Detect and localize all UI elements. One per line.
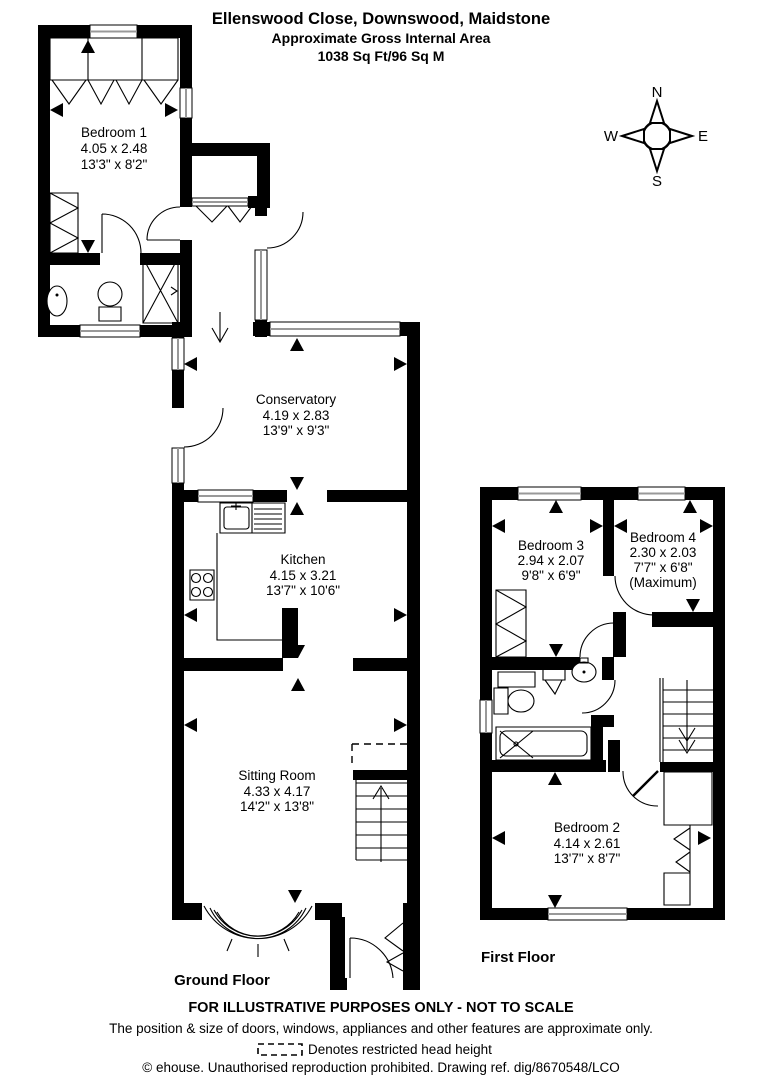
bedroom4-label: Bedroom 4 2.30 x 2.03 7'7" x 6'8" (Maxim…	[629, 530, 697, 590]
page-area: 1038 Sq Ft/96 Sq M	[318, 48, 445, 64]
room-metric: 2.94 x 2.07	[518, 553, 585, 568]
compass-circle	[643, 122, 671, 150]
room-metric: 4.14 x 2.61	[554, 836, 621, 851]
entry-arrow	[212, 312, 228, 342]
restricted-head-height-key-icon	[258, 1044, 302, 1055]
sink-basin	[224, 507, 249, 529]
bedroom2-label: Bedroom 2 4.14 x 2.61 13'7" x 8'7"	[554, 820, 621, 866]
room-imperial: 13'3" x 8'2"	[81, 157, 148, 172]
porch-window-glazing-marks	[196, 206, 252, 222]
disclaimer-line3: Denotes restricted head height	[308, 1042, 492, 1057]
kitchen-label: Kitchen 4.15 x 3.21 13'7" x 10'6"	[266, 552, 340, 598]
first-floor-plan: Bedroom 3 2.94 x 2.07 9'8" x 6'9" Bedroo…	[480, 487, 725, 966]
ground-floor-plan: Bedroom 1 4.05 x 2.48 13'3" x 8'2" Conse…	[38, 25, 420, 990]
ground-floor-label: Ground Floor	[174, 972, 270, 989]
hob-burner	[204, 588, 213, 597]
room-name: Bedroom 3	[518, 538, 584, 553]
compass-s: S	[652, 173, 662, 190]
copyright-line: © ehouse. Unauthorised reproduction proh…	[142, 1060, 620, 1075]
room-imperial: 7'7" x 6'8"	[633, 560, 692, 575]
shower-icon	[143, 258, 178, 323]
hob-burner	[192, 574, 201, 583]
room-name: Bedroom 1	[81, 125, 147, 140]
toilet-cistern	[494, 688, 508, 714]
compass-icon: N E S W	[604, 84, 708, 190]
stairs-up	[356, 770, 407, 862]
room-metric: 4.15 x 3.21	[270, 568, 337, 583]
bedroom3-label: Bedroom 3 2.94 x 2.07 9'8" x 6'9"	[518, 538, 585, 583]
bath-inner	[500, 731, 587, 756]
stairs-down	[660, 678, 713, 762]
disclaimer-line1: FOR ILLUSTRATIVE PURPOSES ONLY - NOT TO …	[188, 1000, 574, 1016]
room-note: (Maximum)	[629, 575, 697, 590]
toilet-cistern	[99, 307, 121, 321]
room-imperial: 14'2" x 13'8"	[240, 799, 314, 814]
toilet-bowl-icon	[98, 282, 122, 306]
hob-burner	[204, 574, 213, 583]
ground-floor-windows	[80, 25, 400, 502]
basin-icon	[47, 286, 67, 316]
room-metric: 4.33 x 4.17	[244, 784, 311, 799]
restricted-head-height-line	[352, 744, 407, 767]
basin-tap-dot	[56, 294, 59, 297]
room-imperial: 13'7" x 8'7"	[554, 851, 621, 866]
first-floor-label: First Floor	[481, 949, 555, 966]
room-name: Bedroom 2	[554, 820, 620, 835]
bedroom2-door-leaf	[633, 771, 658, 796]
room-name: Kitchen	[280, 552, 325, 567]
room-metric: 2.30 x 2.03	[630, 545, 697, 560]
room-imperial: 9'8" x 6'9"	[521, 568, 580, 583]
toilet-bowl-icon	[508, 690, 534, 712]
floorplan-drawing: Ellenswood Close, Downswood, Maidstone A…	[0, 0, 763, 1080]
room-imperial: 13'7" x 10'6"	[266, 583, 340, 598]
disclaimer-line2: The position & size of doors, windows, a…	[109, 1021, 653, 1036]
bay-window-icon	[204, 906, 312, 957]
room-name: Conservatory	[256, 392, 337, 407]
room-imperial: 13'9" x 9'3"	[263, 423, 330, 438]
page-title: Ellenswood Close, Downswood, Maidstone	[212, 10, 550, 28]
header: Ellenswood Close, Downswood, Maidstone A…	[212, 10, 550, 64]
bedroom3-wardrobe	[496, 590, 526, 657]
conservatory-label: Conservatory 4.19 x 2.83 13'9" x 9'3"	[256, 392, 337, 438]
page-subtitle: Approximate Gross Internal Area	[272, 30, 491, 46]
floorplan-page: Ellenswood Close, Downswood, Maidstone A…	[0, 0, 763, 1080]
compass-n: N	[652, 84, 663, 101]
room-name: Bedroom 4	[630, 530, 697, 545]
room-metric: 4.19 x 2.83	[263, 408, 330, 423]
bedroom1-label: Bedroom 1 4.05 x 2.48 13'3" x 8'2"	[81, 125, 148, 172]
sitting-room-label: Sitting Room 4.33 x 4.17 14'2" x 13'8"	[238, 768, 315, 814]
bath-icon	[496, 727, 591, 760]
compass-e: E	[698, 128, 708, 145]
footer: FOR ILLUSTRATIVE PURPOSES ONLY - NOT TO …	[109, 1000, 653, 1075]
first-bathroom	[494, 658, 596, 760]
room-metric: 4.05 x 2.48	[81, 141, 148, 156]
room-name: Sitting Room	[238, 768, 315, 783]
compass-w: W	[604, 128, 619, 145]
basin-tap-dot	[583, 671, 586, 674]
hob-burner	[192, 588, 201, 597]
